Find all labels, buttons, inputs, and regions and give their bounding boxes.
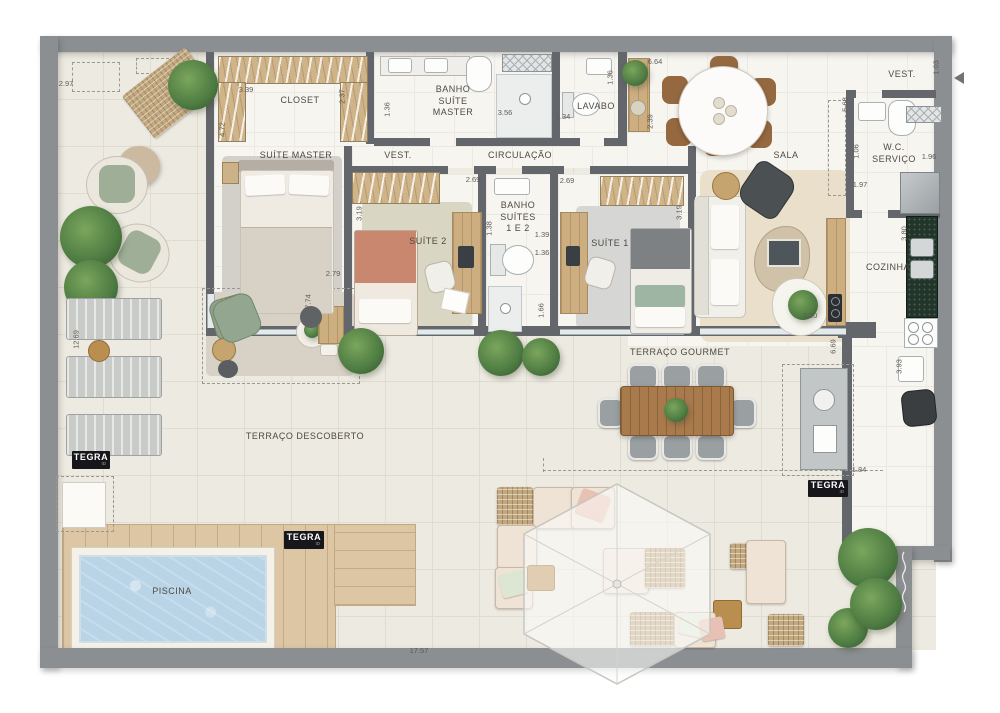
outer-wall-bottom — [40, 648, 912, 668]
dim-label: 1.39 — [531, 230, 553, 239]
egg-chair-1 — [86, 156, 148, 214]
banho-suites-shower — [488, 286, 522, 332]
dining-table — [678, 66, 768, 156]
dim-label: 17.57 — [406, 646, 432, 655]
dining-decor-3 — [713, 113, 725, 125]
lounge-seat-6 — [746, 540, 786, 604]
banho-master-shelf — [502, 54, 552, 72]
dim-label: 3.19 — [355, 203, 364, 225]
tegra-logo-2: TEGRA ID — [284, 531, 324, 549]
wall-lavabo-bottom-a — [560, 138, 580, 146]
banho-suites-sink — [494, 178, 530, 195]
wardrobe-vest-master — [352, 172, 440, 204]
dim-label: 3.19 — [675, 202, 684, 224]
dim-label: 1.36 — [383, 99, 392, 121]
dim-label: 1.97 — [849, 180, 871, 189]
gourmet-table-plant — [664, 398, 688, 422]
nightstand-master — [222, 162, 239, 184]
gourmet-chair-5 — [662, 434, 692, 460]
label-circulacao: CIRCULAÇÃO — [482, 150, 558, 162]
bed-master — [240, 170, 334, 314]
dim-label: 7.74 — [304, 291, 313, 313]
desk-suite2-laptop — [458, 246, 474, 268]
dim-label: 1.03 — [932, 57, 941, 79]
closet-wardrobe-top — [218, 56, 368, 84]
sun-lounger-3 — [66, 414, 162, 456]
wall-corridor-d — [590, 166, 694, 174]
wall-banho-lavabo — [552, 52, 560, 146]
dim-label: 1.36 — [606, 67, 615, 89]
label-terraco-descoberto: TERRAÇO DESCOBERTO — [238, 431, 372, 443]
dim-label: 12.69 — [72, 327, 81, 353]
dim-label: 4.72 — [218, 119, 227, 141]
egg-chair-2-cushion — [115, 227, 165, 277]
wall-corridor-b — [474, 166, 496, 174]
wood-deck-side — [334, 524, 416, 606]
dim-label: 2.69 — [556, 176, 578, 185]
bed-suite2-pillow — [359, 299, 411, 323]
shower-drain-icon — [519, 93, 531, 105]
dim-label: 3.20 — [799, 311, 821, 320]
bed-suite1 — [630, 228, 692, 334]
bed-suite1-blanket — [631, 229, 690, 269]
dim-label: 1.66 — [537, 300, 546, 322]
burner-2 — [831, 309, 840, 318]
dim-label: 3.39 — [235, 85, 257, 94]
label-sala: SALA — [770, 150, 802, 162]
label-vest-master: VEST. — [380, 150, 416, 162]
label-closet: CLOSET — [270, 95, 330, 107]
outdoor-pouf-dark — [218, 360, 238, 378]
dim-label: 3.56 — [494, 108, 516, 117]
outdoor-console-chair — [320, 344, 338, 356]
pool — [72, 548, 274, 650]
stove-burner-2 — [922, 322, 933, 333]
lounge-chair-dark — [900, 388, 938, 427]
label-piscina: PISCINA — [146, 586, 198, 598]
label-wc-servico: W.C. SERVIÇO — [868, 142, 920, 165]
plant-window-2 — [478, 330, 524, 376]
label-suite1: SUÍTE 1 — [584, 238, 636, 250]
outer-wall-top — [40, 36, 952, 52]
bed-master-pillow-1 — [245, 174, 286, 196]
wc-sink — [858, 102, 886, 121]
plant-terrace-top — [168, 60, 218, 110]
gourmet-bar-counter — [800, 368, 848, 470]
floorplan-canvas: CLOSET SUÍTE MASTER VEST. BANHO SUÍTE MA… — [0, 0, 1000, 713]
dim-label: 2.97 — [55, 79, 77, 88]
sofa-seat-1 — [711, 205, 739, 249]
stove-burner-4 — [922, 334, 933, 345]
dim-label: 2.69 — [462, 175, 484, 184]
dim-label: 1.38 — [485, 218, 494, 240]
dim-label: 2.39 — [646, 111, 655, 133]
wall-banho-bottom-a — [374, 138, 430, 146]
plant-terrace-mid-1 — [60, 206, 122, 268]
stove — [904, 318, 938, 348]
desk-suite1-laptop — [566, 246, 580, 266]
stove-burner-3 — [908, 334, 919, 345]
architect-signature — [896, 548, 912, 620]
cooktop — [828, 294, 842, 322]
label-suite2: SUÍTE 2 — [402, 236, 454, 248]
wall-banho-bottom-b — [456, 138, 554, 146]
side-table-sala — [712, 172, 740, 200]
dim-label: 2.79 — [322, 269, 344, 278]
dashed-cover-line-v — [543, 458, 544, 472]
outer-wall-left — [40, 36, 58, 668]
dashed-cover-line — [543, 470, 883, 471]
tegra-logo-3: TEGRA ID — [808, 480, 848, 497]
bar-sink — [813, 389, 835, 411]
sofa-backrest — [695, 197, 709, 315]
entry-arrow-icon — [954, 72, 964, 84]
sofa-sala — [694, 196, 746, 318]
sofa-seat-2 — [711, 259, 739, 305]
dim-label: 2.37 — [338, 86, 347, 108]
glass-door-sala — [700, 328, 846, 335]
wall-wc-bottom-a — [846, 210, 862, 218]
dim-label: 1.34 — [552, 112, 574, 121]
wc-shelf — [906, 106, 942, 123]
label-cozinha: COZINHA — [862, 262, 914, 274]
bed-master-pillow-2 — [289, 174, 330, 196]
bed-suite1-pillow-green — [635, 285, 685, 307]
tegra-logo-sub: ID — [840, 490, 845, 495]
coffee-table-tray — [767, 239, 801, 267]
label-lavabo: LAVABO — [568, 101, 624, 113]
wardrobe-suite1 — [600, 176, 684, 206]
dim-label: 3.80 — [900, 223, 909, 245]
dim-label: 5.68 — [841, 94, 850, 116]
dim-label: 6.64 — [644, 57, 666, 66]
dim-label: 3.93 — [895, 356, 904, 378]
bed-suite1-pillow-white — [635, 307, 685, 327]
label-terraco-gourmet: TERRAÇO GOURMET — [620, 347, 740, 359]
dim-label: 1.36 — [531, 248, 553, 257]
dim-label: 6.69 — [829, 336, 838, 358]
burner-1 — [831, 297, 840, 306]
egg-chair-1-cushion — [99, 165, 135, 203]
bed-master-blanket — [241, 227, 332, 313]
dining-decor-2 — [725, 105, 737, 117]
banho-master-shower — [496, 74, 552, 138]
label-suite-master: SUÍTE MASTER — [244, 150, 348, 162]
kitchen-sink-1 — [910, 238, 934, 257]
umbrella-icon — [505, 478, 729, 690]
shower-drain-icon-2 — [500, 303, 511, 314]
gourmet-chair-4 — [628, 434, 658, 460]
gourmet-chair-6 — [696, 434, 726, 460]
tegra-logo-sub: ID — [102, 462, 107, 467]
banho-master-sink-1 — [388, 58, 412, 73]
tegra-logo-sub: ID — [316, 542, 321, 547]
washer — [900, 172, 940, 214]
sun-lounger-2 — [66, 356, 162, 398]
label-banho-master: BANHO SUÍTE MASTER — [420, 84, 486, 119]
stove-burner-1 — [908, 322, 919, 333]
wall-wc-top-b — [882, 90, 936, 98]
equipment-box — [62, 482, 106, 528]
dim-label: 1.84 — [848, 465, 870, 474]
dim-label: 1.96 — [918, 152, 940, 161]
banho-suites-toilet-bowl — [502, 245, 534, 275]
dim-label: 1.06 — [852, 141, 861, 163]
banho-master-sink-2 — [424, 58, 448, 73]
dashed-projection-a — [72, 62, 120, 92]
plant-corner-2 — [850, 578, 902, 630]
bar-grill — [813, 425, 837, 453]
entry-console-bowl — [630, 100, 646, 116]
label-vest-entry: VEST. — [884, 69, 920, 81]
wall-corridor-c — [522, 166, 564, 174]
lounger-side-table — [88, 340, 110, 362]
tegra-logo-1: TEGRA ID — [72, 451, 110, 469]
plant-window-1 — [338, 328, 384, 374]
dining-decor-1 — [713, 97, 725, 109]
lounge-wicker-5 — [768, 614, 804, 646]
plant-window-3 — [522, 338, 560, 376]
